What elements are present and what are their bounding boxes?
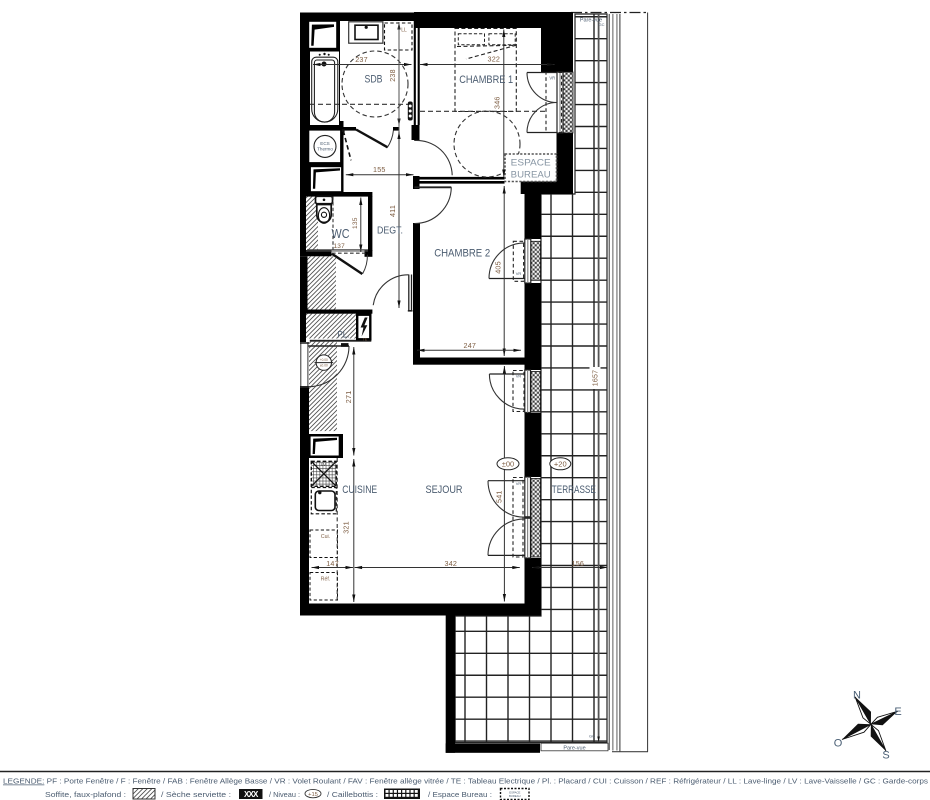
svg-text:E: E [894, 706, 901, 718]
svg-text:+15: +15 [308, 792, 318, 798]
svg-text:147: 147 [326, 559, 339, 568]
svg-text:S: S [882, 750, 889, 762]
svg-text:SEJOUR: SEJOUR [426, 484, 463, 496]
svg-text:405: 405 [493, 261, 502, 274]
svg-text:Pare-vue: Pare-vue [580, 18, 602, 24]
svg-text:XXX: XXX [244, 790, 259, 799]
svg-text:CHAMBRE 2: CHAMBRE 2 [434, 247, 490, 259]
svg-text:541: 541 [495, 490, 504, 503]
svg-text:156: 156 [572, 559, 585, 568]
svg-text:Réf.: Réf. [321, 577, 331, 583]
svg-text:VR: VR [516, 271, 522, 276]
svg-text:CHAMBRE 1: CHAMBRE 1 [459, 74, 513, 86]
svg-text:Cui.: Cui. [321, 534, 330, 540]
svg-text:CUISINE: CUISINE [342, 484, 377, 496]
svg-text:271: 271 [344, 391, 353, 404]
svg-text:O: O [834, 738, 843, 750]
svg-text:/ Niveau :: / Niveau : [269, 790, 300, 799]
svg-text:±00: ±00 [502, 460, 514, 469]
svg-text:N: N [853, 690, 861, 702]
svg-text:Soffite, faux-plafond :: Soffite, faux-plafond : [45, 790, 126, 799]
svg-text:411: 411 [388, 205, 397, 217]
svg-text:LEGENDE: PF : Porte Fenêtre /: LEGENDE: PF : Porte Fenêtre / F : Fenêtr… [3, 777, 928, 786]
svg-text:PL.: PL. [337, 329, 349, 339]
svg-text:ESPACE: ESPACE [511, 158, 551, 168]
svg-text:LV: LV [321, 462, 326, 467]
svg-text:Pare-vue: Pare-vue [563, 745, 585, 751]
svg-text:/ Espace Bureau :: / Espace Bureau : [428, 790, 492, 799]
svg-text:±0.00: ±0.00 [320, 364, 328, 368]
svg-text:342: 342 [445, 559, 458, 568]
svg-text:137: 137 [333, 243, 345, 250]
svg-text:321: 321 [342, 521, 351, 534]
svg-text:BUREAU: BUREAU [511, 170, 551, 180]
svg-text:+20: +20 [554, 460, 567, 469]
svg-text:SDB: SDB [365, 74, 383, 86]
svg-text:+0.00: +0.00 [320, 358, 328, 362]
svg-text:247: 247 [464, 341, 477, 350]
svg-text:WC: WC [332, 226, 350, 241]
svg-text:DEGT.: DEGT. [377, 225, 403, 237]
svg-text:237: 237 [355, 55, 368, 64]
svg-text:322: 322 [488, 55, 501, 64]
svg-text:LL: LL [401, 28, 407, 34]
svg-text:VR: VR [549, 76, 555, 81]
svg-text:238: 238 [388, 69, 397, 82]
svg-text:135: 135 [352, 217, 359, 229]
svg-text:155: 155 [373, 165, 386, 174]
svg-text:1657: 1657 [593, 370, 600, 386]
svg-text:Thermo: Thermo [317, 147, 333, 152]
svg-text:/ Caillebottis :: / Caillebottis : [327, 790, 378, 799]
svg-text:/ Sèche serviette :: / Sèche serviette : [161, 790, 231, 799]
svg-text:VR: VR [516, 481, 522, 486]
svg-text:GC: GC [589, 734, 595, 739]
svg-text:BUREAU: BUREAU [509, 794, 521, 798]
svg-text:ECS: ECS [320, 141, 329, 146]
svg-text:TERRASSE: TERRASSE [552, 484, 596, 496]
svg-text:346: 346 [493, 96, 502, 109]
svg-text:TE: TE [363, 337, 368, 341]
